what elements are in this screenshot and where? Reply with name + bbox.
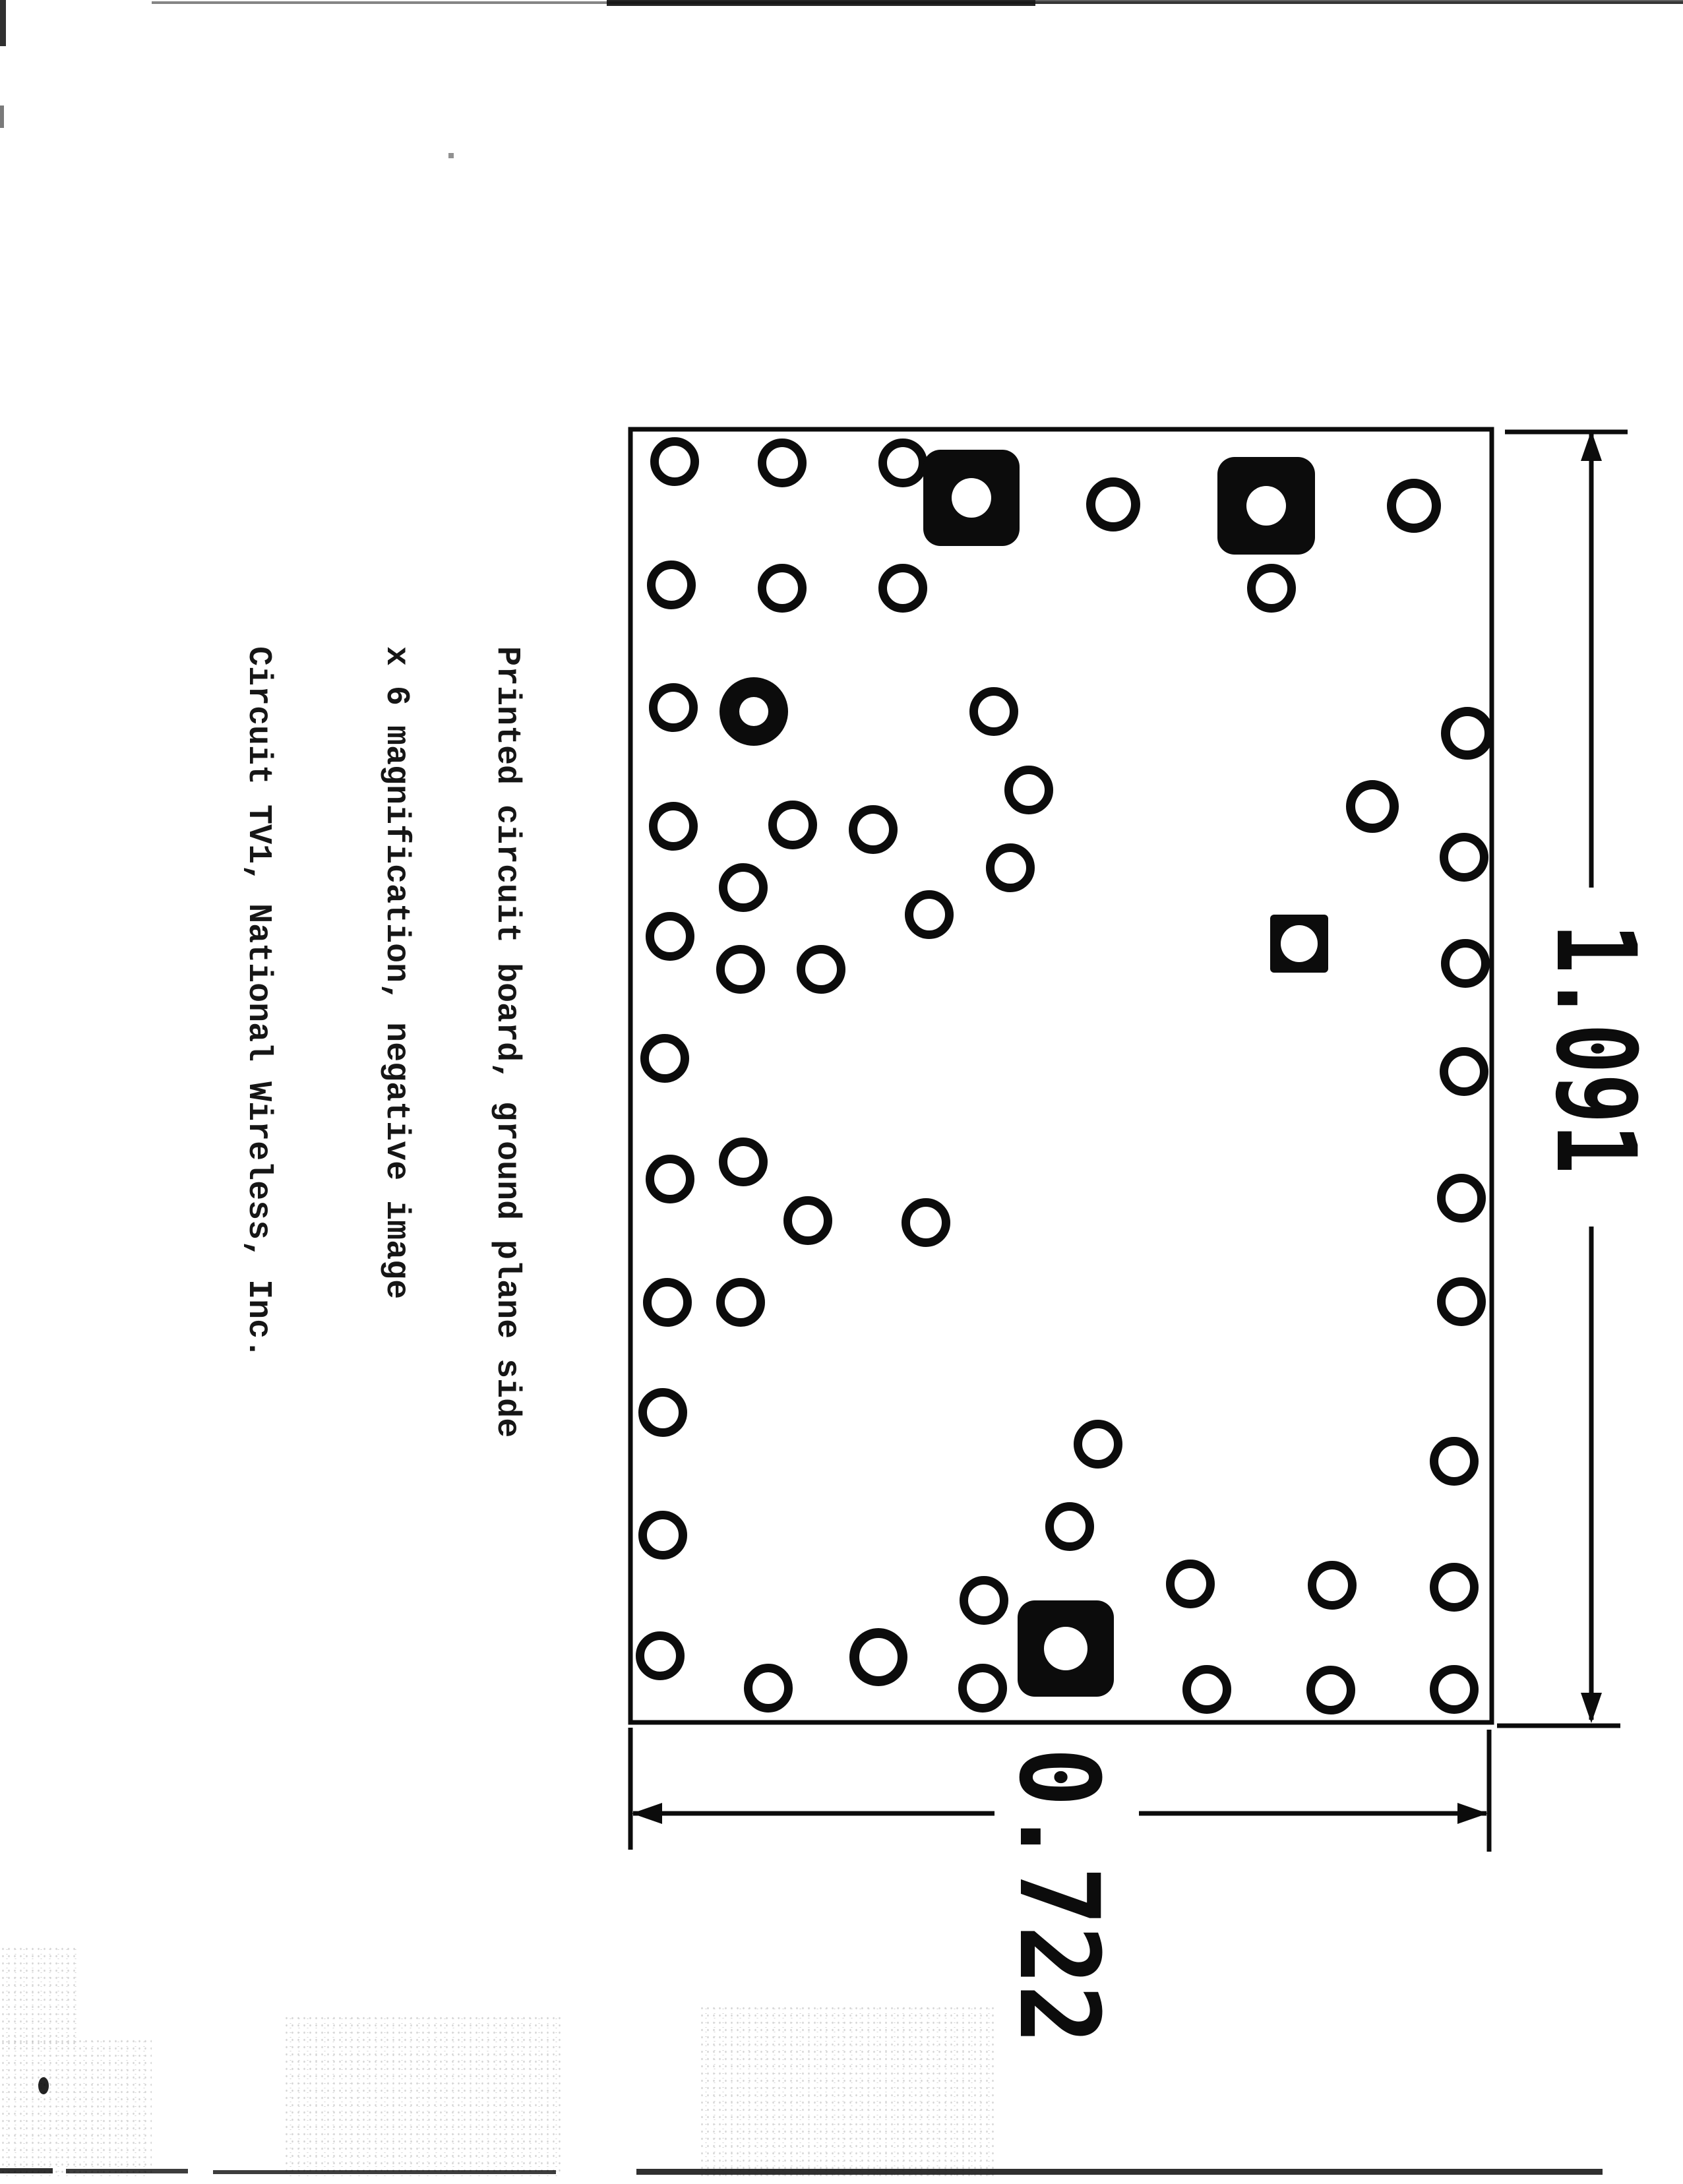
- pad-hole-ring: [645, 1039, 685, 1079]
- pad-hole-ring: [1171, 1564, 1211, 1604]
- pad-hole-ring: [1050, 1507, 1090, 1547]
- pad-hole-ring: [762, 568, 803, 609]
- figure-caption: Printed circuit board, ground plane side…: [166, 646, 599, 1438]
- pad-hole-ring: [788, 1201, 828, 1241]
- pad-hole-ring: [749, 1668, 789, 1709]
- pad-hole-ring: [773, 805, 813, 845]
- pad-hole-ring: [655, 442, 695, 482]
- pad-hole-ring: [1434, 1567, 1475, 1608]
- pad-square-hole: [1281, 925, 1318, 962]
- pad-hole-ring: [1009, 770, 1049, 810]
- pad-hole-ring: [1392, 483, 1436, 528]
- pad-hole-ring: [1446, 944, 1486, 984]
- pad-hole-ring: [1351, 785, 1394, 828]
- pad-hole-ring: [964, 1581, 1004, 1621]
- pad-hole-ring: [853, 810, 894, 850]
- pad-hole-ring: [883, 443, 923, 483]
- pad-square-hole: [952, 478, 991, 518]
- pad-hole-ring: [640, 1636, 681, 1676]
- pad-hole-ring: [1444, 1052, 1484, 1092]
- arrowhead-up-icon: [1581, 431, 1602, 461]
- pad-hole-ring: [654, 688, 694, 728]
- arrowhead-left-icon: [632, 1803, 662, 1824]
- caption-line-1: Printed circuit board, ground plane side: [488, 646, 525, 1438]
- pad-hole-ring: [883, 568, 923, 609]
- scan-edge-mark: [607, 0, 1035, 6]
- pad-hole-ring: [1078, 1424, 1118, 1465]
- pad-square-hole: [1044, 1627, 1087, 1670]
- pad-hole-ring: [762, 443, 803, 483]
- pad-hole-ring: [1311, 1670, 1351, 1711]
- scanned-document-page: 1.091 0.722 Printed circuit board, groun…: [0, 0, 1683, 2184]
- pcb-generated-geometry: [630, 429, 1628, 1852]
- scan-noise-speckle: [699, 2005, 996, 2176]
- caption-line-2: x 6 magnification, negative image: [377, 646, 414, 1438]
- pad-hole-ring: [1446, 712, 1489, 755]
- scan-noise-speckle: [0, 2038, 152, 2176]
- pad-hole-ring: [909, 895, 950, 935]
- pad-hole-ring: [906, 1203, 946, 1243]
- pad-hole-ring: [721, 950, 761, 990]
- pad-hole-ring: [723, 1142, 764, 1182]
- pad-hole-ring: [1444, 837, 1484, 878]
- width-dimension-label: 0.722: [994, 1747, 1122, 2044]
- scan-edge-mark: [448, 153, 454, 158]
- pad-donut-hole: [739, 697, 768, 726]
- pad-hole-ring: [643, 1515, 683, 1556]
- arrowhead-down-icon: [1581, 1693, 1602, 1723]
- pad-hole-ring: [650, 917, 690, 957]
- pad-square-hole: [1246, 486, 1286, 526]
- pad-hole-ring: [723, 868, 764, 908]
- pad-hole-ring: [801, 950, 841, 990]
- pad-hole-ring: [1442, 1282, 1482, 1322]
- scan-edge-mark: [0, 0, 6, 46]
- pad-hole-ring: [652, 565, 692, 605]
- pad-hole-ring: [974, 692, 1014, 732]
- pad-hole-ring: [963, 1668, 1003, 1709]
- board-outline: [630, 429, 1492, 1722]
- pad-hole-ring: [1091, 482, 1136, 527]
- pad-hole-ring: [855, 1633, 903, 1682]
- caption-credit: Circuit TV1, National Wireless, Inc.: [239, 646, 276, 1438]
- pad-hole-ring: [643, 1393, 683, 1433]
- pad-hole-ring: [1187, 1670, 1227, 1710]
- scan-noise-speckle: [284, 2015, 561, 2176]
- pad-hole-ring: [648, 1283, 688, 1323]
- pad-hole-ring: [1312, 1565, 1353, 1606]
- pad-hole-ring: [654, 806, 694, 847]
- scan-edge-mark: [0, 106, 4, 128]
- pad-hole-ring: [1252, 568, 1292, 609]
- arrowhead-right-icon: [1457, 1803, 1488, 1824]
- pad-hole-ring: [650, 1159, 690, 1199]
- pad-hole-ring: [991, 848, 1031, 888]
- pad-hole-ring: [1434, 1670, 1475, 1710]
- pad-hole-ring: [1434, 1441, 1475, 1482]
- pad-hole-ring: [1442, 1178, 1482, 1219]
- scan-noise-speckle: [0, 1945, 79, 2044]
- pad-hole-ring: [721, 1283, 761, 1323]
- height-dimension-label: 1.091: [1531, 923, 1659, 1174]
- scan-edge-mark: [1035, 0, 1683, 4]
